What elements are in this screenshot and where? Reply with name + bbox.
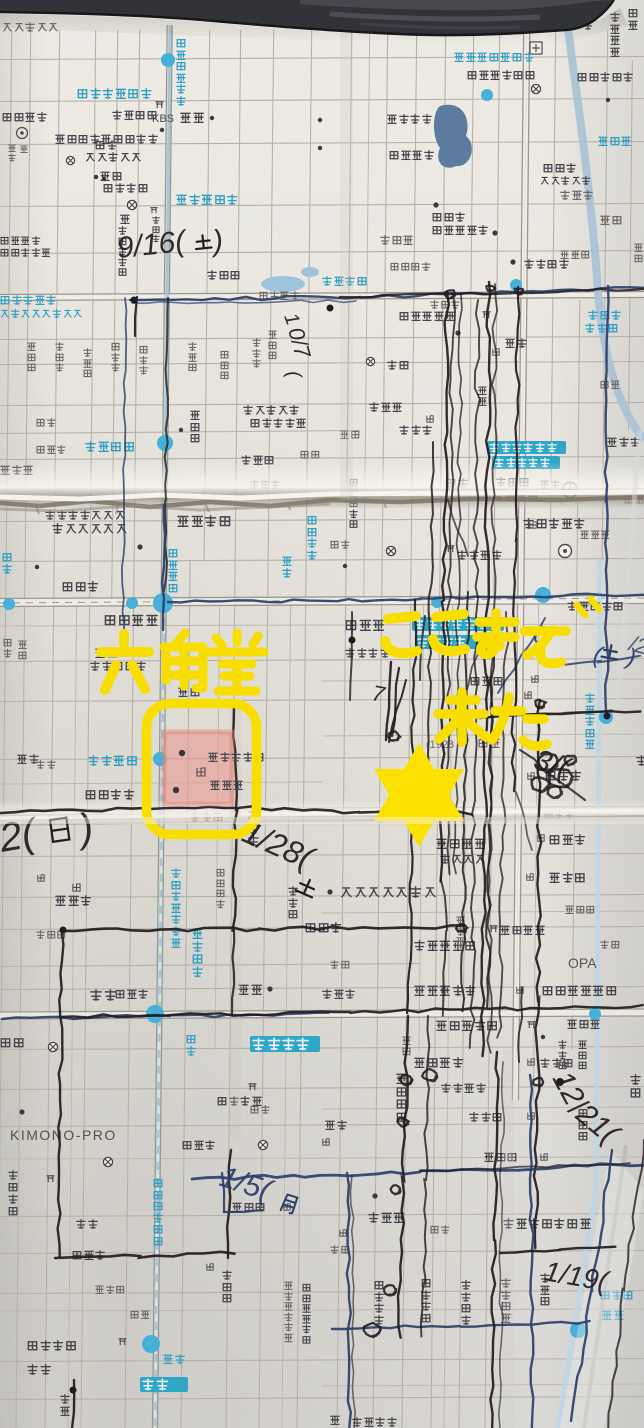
svg-text:OPA: OPA [568, 955, 597, 971]
svg-text:KIMONO-PRO: KIMONO-PRO [10, 1127, 117, 1143]
